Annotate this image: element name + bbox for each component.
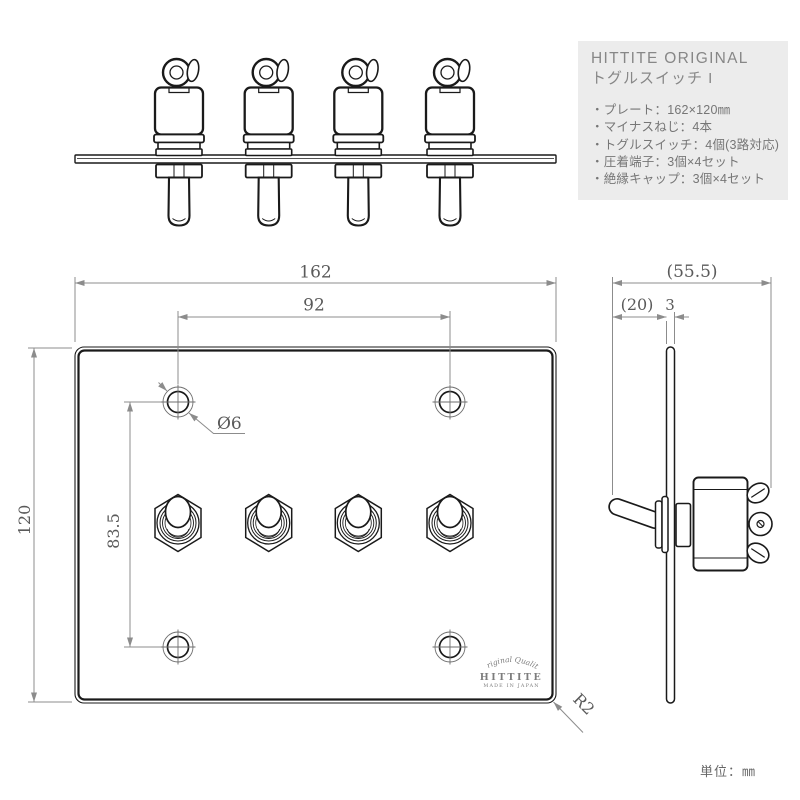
dim-label-3: 3 [665,296,675,314]
toggle-switch-front [427,495,473,552]
terminal-screw [749,513,772,536]
product-info-box: HITTITE ORIGINAL トグルスイッチ I ・プレート：162×120… [578,41,788,200]
plate-outline [75,347,556,703]
dim-hole-pitch-v: 83.5 [104,402,161,647]
side-view: (55.5) (20) 3 [607,262,773,703]
toggle-switch-front [155,495,201,552]
spec-item-plate: ・プレート：162×120㎜ [591,102,782,119]
dim-plate-thickness: 3 [665,296,689,344]
toggle-switch-front [335,495,381,552]
logo-sub-text: MADE IN JAPAN [483,683,539,689]
screw-hole [433,630,468,665]
dim-label-55-5: (55.5) [666,262,717,282]
dim-hole-pitch-h: 92 [178,296,450,385]
logo-name: HITTITE [480,672,543,683]
spec-list: ・プレート：162×120㎜ ・マイナスねじ：4本 ・トグルスイッチ：4個(3路… [591,102,782,188]
toggle-switch-side [425,59,475,226]
product-title: HITTITE ORIGINAL [591,49,782,69]
unit-note: 単位：㎜ [700,761,756,780]
plate-edge-view [75,155,556,163]
dim-label-r2: R2 [569,690,598,719]
front-view: Original Quality HITTITE MADE IN JAPAN 1… [0,0,598,733]
toggle-switch-side [244,59,294,226]
dim-label-92: 92 [303,296,325,316]
dim-label-83-5: 83.5 [104,513,123,549]
top-assembly-view [75,59,556,226]
dim-label-dia6: Ø6 [217,414,242,434]
dim-label-20: (20) [621,295,654,314]
dim-label-120: 120 [15,505,34,536]
toggle-switch-front [246,495,292,552]
screw-hole [161,630,196,665]
dim-hole-diameter: Ø6 [159,383,246,435]
toggle-switch-profile [607,478,773,571]
screw-hole [433,385,468,420]
toggle-switch-side [154,59,204,226]
spec-sheet: Original Quality HITTITE MADE IN JAPAN 1… [0,0,800,800]
dim-plate-height: 120 [15,348,72,702]
dim-lever-projection: (20) [613,295,667,317]
spec-item-screws: ・マイナスねじ：4本 [591,119,782,136]
product-subtitle: トグルスイッチ I [591,69,782,89]
spec-item-switches: ・トグルスイッチ：4個(3路対応) [591,137,782,154]
dim-label-162: 162 [299,263,331,283]
toggle-switch-side [333,59,383,226]
dim-corner-radius: R2 [554,690,599,733]
spec-item-caps: ・絶縁キャップ：3個×4セット [591,171,782,188]
spec-item-terminals: ・圧着端子：3個×4セット [591,154,782,171]
